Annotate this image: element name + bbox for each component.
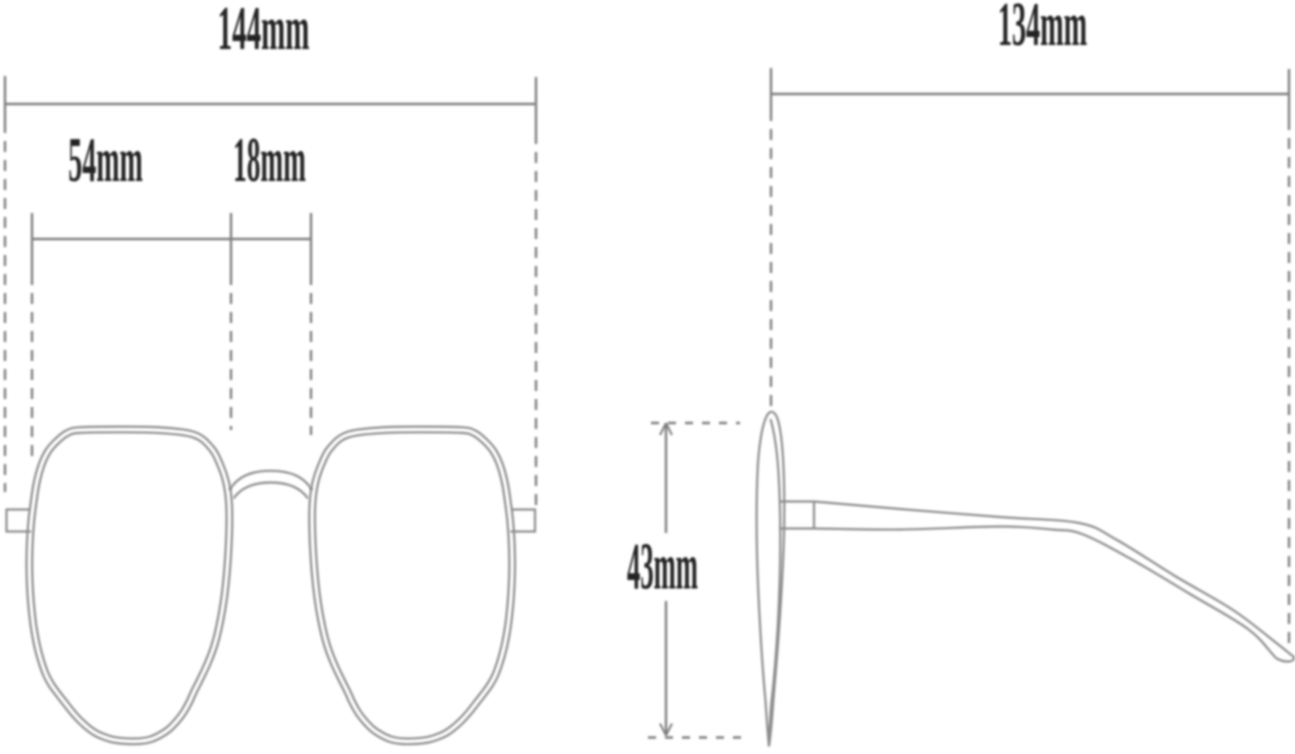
svg-text:144mm: 144mm bbox=[218, 0, 310, 63]
svg-text:54mm: 54mm bbox=[68, 124, 143, 195]
svg-text:43mm: 43mm bbox=[627, 531, 698, 605]
svg-text:134mm: 134mm bbox=[998, 0, 1087, 59]
svg-text:18mm: 18mm bbox=[233, 124, 306, 196]
